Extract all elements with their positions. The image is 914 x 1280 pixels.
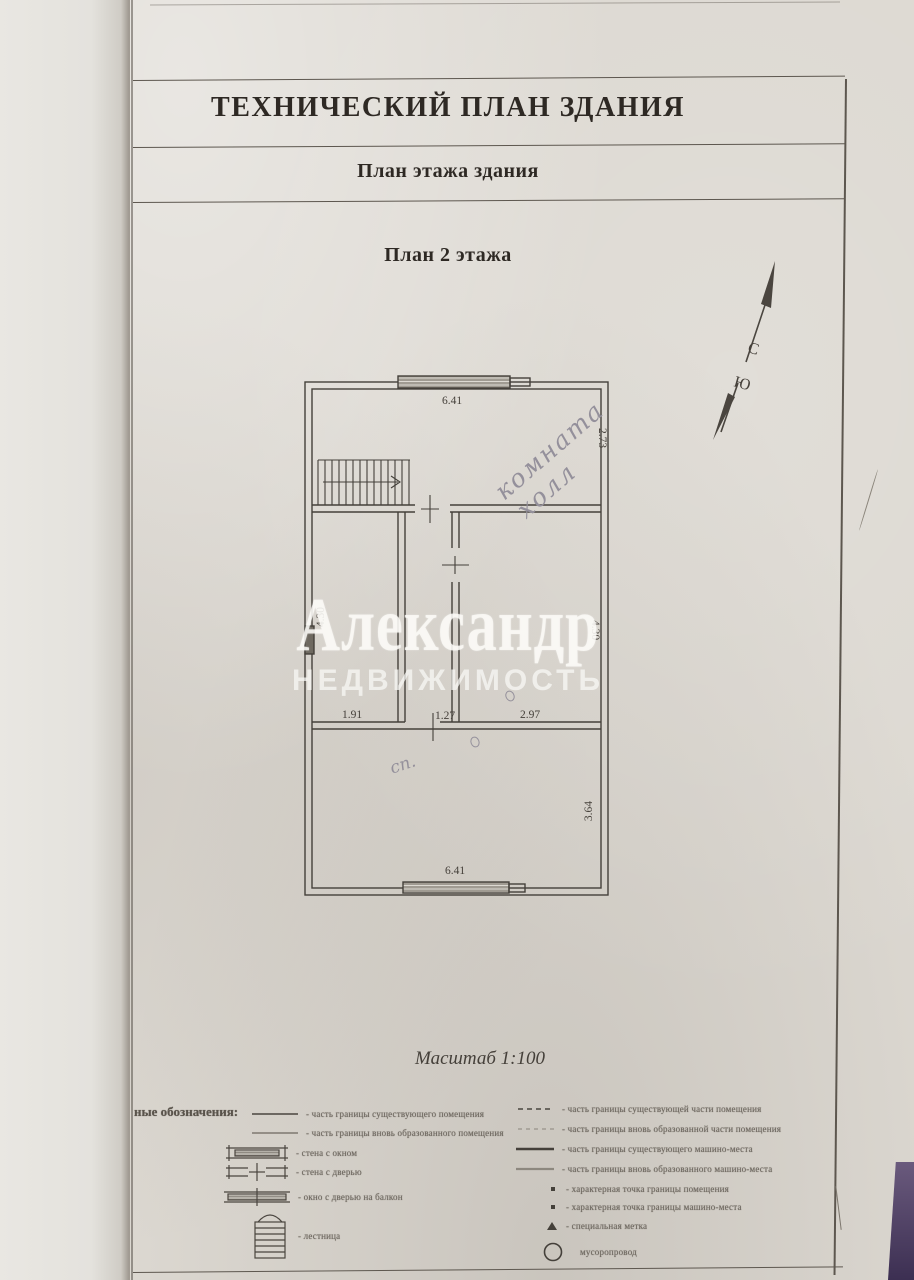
plan-caption: План 2 этажа	[133, 244, 763, 267]
legend-label: - часть границы вновь образованного маши…	[562, 1164, 772, 1174]
dimension-label: 6.41	[442, 395, 462, 407]
legend-row: - специальная метка	[546, 1220, 647, 1232]
compass-north-label: С	[746, 340, 761, 359]
dimension-label: 1.91	[342, 709, 362, 721]
special-mark-triangle-icon	[546, 1220, 558, 1232]
legend-row: мусоропровод	[542, 1240, 637, 1264]
legend-label: - часть границы вновь образованного поме…	[306, 1128, 504, 1138]
legend-row: - часть границы существующего помещения	[252, 1109, 484, 1119]
legend-row: - стена с дверью	[226, 1163, 362, 1181]
bottom-window	[403, 882, 525, 893]
legend-row: - часть границы существующей части помещ…	[518, 1104, 761, 1114]
legend-label: - окно с дверью на балкон	[298, 1192, 403, 1202]
boundary-point-small-icon	[548, 1202, 558, 1212]
north-arrow-head	[761, 261, 775, 308]
stray-pen-mark	[859, 469, 879, 531]
handwritten-mark	[470, 690, 516, 748]
watermark-line2: НЕДВИЖИМОСТЬ	[133, 664, 763, 698]
door-mark-vertical	[442, 556, 469, 574]
legend-label: - часть границы существующего помещения	[306, 1109, 484, 1119]
wall-with-door-icon	[226, 1163, 288, 1181]
page-fold-edge	[131, 0, 133, 1280]
frame-line-top	[133, 76, 845, 82]
legend-label: - часть границы существующего машино-мес…	[562, 1144, 753, 1154]
garbage-chute-circle-icon	[542, 1240, 564, 1264]
frame-line-bottom	[133, 1266, 843, 1273]
top-window	[398, 376, 530, 388]
north-arrow-icon: С Ю	[705, 252, 815, 447]
watermark-line1: Александр	[196, 582, 700, 669]
dimension-label: 6.41	[445, 865, 465, 877]
window-with-balcony-door-icon	[224, 1188, 290, 1206]
legend-label: мусоропровод	[580, 1247, 637, 1257]
dashed-line-icon	[518, 1105, 554, 1113]
door-mark-upper	[421, 495, 439, 523]
legend-row: - стена с окном	[226, 1144, 357, 1162]
dimension-label: 2.97	[520, 709, 540, 721]
staircase	[318, 460, 410, 505]
dimension-label: 1.27	[435, 710, 455, 722]
legend-label: - характерная точка границы машино-места	[566, 1202, 742, 1212]
legend-label: - специальная метка	[566, 1221, 647, 1231]
legend-row: - лестница	[250, 1210, 340, 1262]
legend-label: - лестница	[298, 1231, 340, 1241]
dimension-label: 2.73	[596, 428, 608, 448]
frame-line-under-section	[133, 198, 845, 203]
photo-background-corner	[888, 1162, 914, 1280]
wall-with-window-icon	[226, 1144, 288, 1162]
legend-label: - характерная точка границы помещения	[566, 1184, 729, 1194]
thin-line-icon	[252, 1129, 298, 1137]
legend-label: - часть границы вновь образованной части…	[562, 1124, 781, 1134]
dashed-light-line-icon	[518, 1125, 554, 1133]
boundary-point-icon	[548, 1184, 558, 1194]
bold-light-line-icon	[516, 1165, 554, 1173]
legend-label: - стена с дверью	[296, 1167, 362, 1177]
section-title: План этажа здания	[133, 160, 763, 183]
legend-row: - часть границы вновь образованного поме…	[252, 1128, 504, 1138]
legend-heading: ные обозначения:	[134, 1104, 238, 1120]
left-paper-margin	[0, 0, 130, 1280]
top-paper-crease	[150, 1, 840, 5]
frame-line-under-title	[133, 143, 845, 148]
legend-row: - часть границы существующего машино-мес…	[516, 1144, 753, 1154]
stray-pen-mark	[835, 1186, 842, 1230]
legend-row: - часть границы вновь образованной части…	[518, 1124, 781, 1134]
scanned-technical-plan-page: ТЕХНИЧЕСКИЙ ПЛАН ЗДАНИЯ План этажа здани…	[0, 0, 914, 1280]
solid-line-icon	[252, 1110, 298, 1118]
legend-row: - окно с дверью на балкон	[224, 1188, 403, 1206]
frame-line-right	[834, 79, 847, 1275]
legend-row: - характерная точка границы машино-места	[548, 1202, 742, 1212]
legend-row: - характерная точка границы помещения	[548, 1184, 729, 1194]
south-arrow-tail	[713, 393, 735, 440]
stairs-icon	[250, 1210, 290, 1262]
legend-label: - часть границы существующей части помещ…	[562, 1104, 761, 1114]
bold-line-icon	[516, 1145, 554, 1153]
document-title: ТЕХНИЧЕСКИЙ ПЛАН ЗДАНИЯ	[133, 92, 763, 124]
scale-label: Масштаб 1:100	[133, 1048, 827, 1070]
legend-row: - часть границы вновь образованного маши…	[516, 1164, 772, 1174]
dimension-label: 3.64	[583, 801, 595, 821]
legend-label: - стена с окном	[296, 1148, 357, 1158]
